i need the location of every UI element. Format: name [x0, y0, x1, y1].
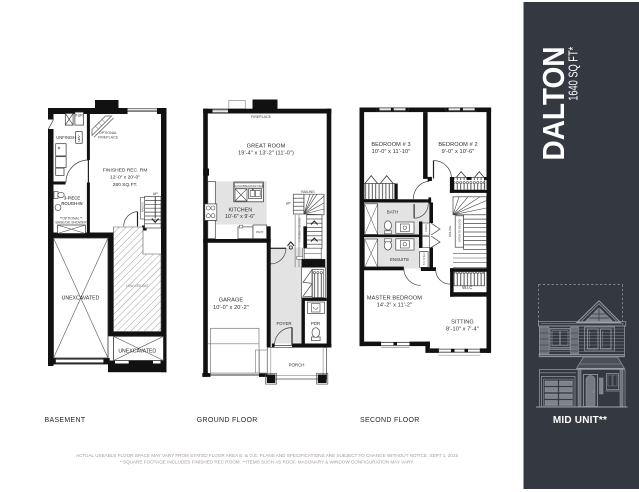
svg-text:8′-10″ x 7′-4″: 8′-10″ x 7′-4″ [446, 326, 479, 332]
svg-text:RAILING: RAILING [301, 190, 315, 194]
svg-text:RAILING: RAILING [448, 226, 452, 237]
svg-text:BASEMENT: BASEMENT [45, 417, 86, 424]
svg-text:UNEXCAVATED: UNEXCAVATED [118, 348, 156, 354]
svg-text:OPEN TO BELOW: OPEN TO BELOW [457, 218, 461, 242]
svg-text:GARAGE: GARAGE [219, 298, 244, 304]
svg-text:ACTUAL USEABLE FLOOR SPACE MAY: ACTUAL USEABLE FLOOR SPACE MAY VARY FROM… [76, 453, 458, 458]
svg-text:LINEN: LINEN [424, 224, 428, 232]
svg-text:BASE/GE SHOWER: BASE/GE SHOWER [55, 221, 87, 225]
svg-text:MASTER BEDROOM: MASTER BEDROOM [367, 296, 422, 302]
svg-text:HRV: HRV [77, 135, 81, 141]
svg-text:FIREPLACE: FIREPLACE [98, 136, 119, 140]
svg-text:10′-6″ x 9′-6″: 10′-6″ x 9′-6″ [225, 214, 255, 220]
svg-text:FUR: FUR [76, 113, 84, 117]
svg-text:BATH: BATH [387, 210, 398, 215]
svg-text:19′-4″ x 13′-2″ (11′-0″): 19′-4″ x 13′-2″ (11′-0″) [238, 150, 294, 156]
svg-text:PANT.: PANT. [256, 230, 264, 234]
svg-text:280 SQ.FT.: 280 SQ.FT. [113, 182, 138, 188]
svg-text:FOYER: FOYER [276, 321, 291, 326]
svg-text:LOW CEILING: LOW CEILING [126, 284, 149, 288]
svg-text:KITCHEN: KITCHEN [228, 208, 252, 214]
svg-text:1640 SQ FT*: 1640 SQ FT* [566, 47, 581, 101]
svg-text:OPTIONAL: OPTIONAL [99, 131, 117, 135]
svg-text:10′-0″ x 20′-2″: 10′-0″ x 20′-2″ [213, 305, 249, 311]
svg-text:14′-2″ x 11′-2″: 14′-2″ x 11′-2″ [377, 302, 412, 308]
svg-text:RAILING: RAILING [141, 202, 145, 212]
svg-text:FLUSH BREAKFAST BAR: FLUSH BREAKFAST BAR [233, 184, 264, 188]
svg-text:3-PIECE: 3-PIECE [64, 196, 80, 201]
svg-text:UP: UP [153, 192, 159, 196]
svg-text:2 STOREY CEILING: 2 STOREY CEILING [298, 218, 302, 242]
svg-text:GROUND FLOOR: GROUND FLOOR [197, 417, 258, 424]
svg-text:12′-0″ x 20′-0″: 12′-0″ x 20′-0″ [110, 175, 140, 181]
svg-text:FIREPLACE: FIREPLACE [251, 115, 272, 119]
svg-text:9′-0″ x 10′-6″: 9′-0″ x 10′-6″ [442, 149, 475, 155]
svg-text:PDR: PDR [311, 321, 320, 326]
svg-text:FINISHED REC. RM: FINISHED REC. RM [103, 168, 148, 174]
svg-text:MID UNIT**: MID UNIT** [553, 415, 607, 426]
svg-text:ENSUITE: ENSUITE [390, 257, 409, 262]
svg-text:W.I.C: W.I.C [462, 285, 472, 290]
svg-text:SECOND FLOOR: SECOND FLOOR [360, 417, 420, 424]
svg-text:BEDROOM # 3: BEDROOM # 3 [371, 142, 410, 148]
svg-text:10′-0″ x 11′-10″: 10′-0″ x 11′-10″ [372, 149, 411, 155]
svg-text:BEDROOM # 2: BEDROOM # 2 [438, 142, 477, 148]
svg-text:* SQUARE FOOTAGE INCLUDES FINI: * SQUARE FOOTAGE INCLUDES FINISHED REC R… [120, 460, 414, 465]
svg-text:GREAT ROOM: GREAT ROOM [247, 143, 286, 149]
svg-text:B.P. SHELF: B.P. SHELF [423, 251, 426, 265]
svg-text:PORCH: PORCH [289, 363, 305, 368]
svg-text:SITTING: SITTING [451, 320, 474, 326]
svg-text:UP: UP [286, 202, 292, 206]
svg-text:UNEXCAVATED: UNEXCAVATED [62, 296, 100, 302]
svg-text:ROUGH-IN: ROUGH-IN [61, 201, 82, 206]
